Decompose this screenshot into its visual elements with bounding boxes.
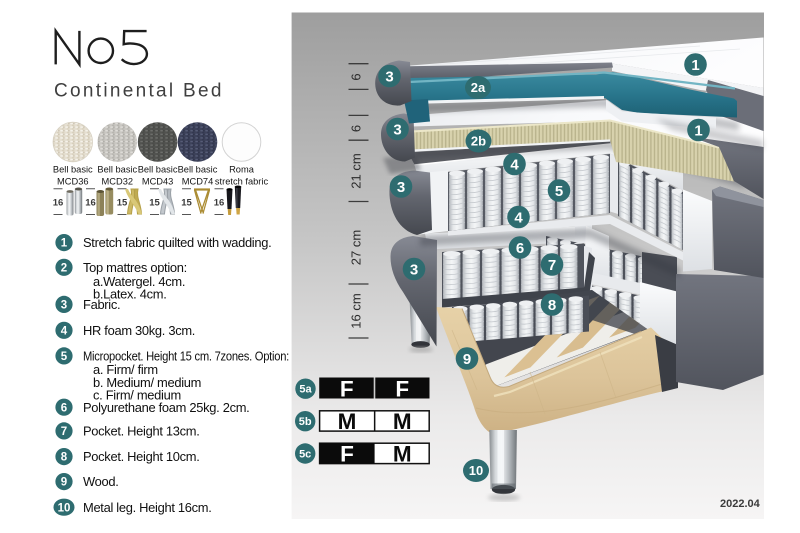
svg-text:MCD74: MCD74: [182, 177, 214, 187]
svg-text:3: 3: [393, 121, 401, 138]
svg-text:16: 16: [214, 198, 225, 209]
svg-text:16 cm: 16 cm: [349, 293, 364, 328]
svg-text:15: 15: [117, 198, 128, 209]
svg-text:16: 16: [53, 198, 64, 209]
svg-text:4: 4: [510, 156, 519, 173]
svg-text:6: 6: [61, 402, 67, 414]
svg-text:5a: 5a: [299, 384, 312, 396]
svg-text:5c: 5c: [299, 448, 311, 460]
svg-text:Top mattres option:: Top mattres option:: [83, 260, 187, 275]
svg-text:Fabric.: Fabric.: [83, 297, 120, 312]
svg-text:1: 1: [694, 122, 702, 139]
svg-text:2: 2: [61, 262, 67, 274]
svg-text:3: 3: [410, 261, 418, 278]
svg-text:21 cm: 21 cm: [349, 153, 364, 188]
svg-text:M: M: [393, 442, 412, 467]
svg-text:Pocket. Height 13cm.: Pocket. Height 13cm.: [83, 424, 200, 439]
svg-text:Bell basic: Bell basic: [53, 165, 93, 175]
svg-text:Bell basic: Bell basic: [97, 165, 137, 175]
svg-text:4: 4: [61, 325, 68, 337]
svg-text:Wood.: Wood.: [83, 474, 119, 489]
svg-text:7: 7: [61, 426, 67, 438]
svg-text:9: 9: [61, 477, 67, 489]
svg-text:6: 6: [349, 125, 364, 132]
svg-text:Bell basic: Bell basic: [138, 165, 178, 175]
svg-text:27 cm: 27 cm: [349, 230, 364, 265]
svg-text:Roma: Roma: [229, 165, 255, 175]
svg-text:8: 8: [548, 297, 556, 314]
svg-text:Polyurethane foam 25kg. 2cm.: Polyurethane foam 25kg. 2cm.: [83, 400, 249, 415]
svg-text:HR foam 30kg. 3cm.: HR foam 30kg. 3cm.: [83, 323, 195, 338]
svg-text:4: 4: [514, 209, 523, 226]
svg-text:2022.04: 2022.04: [720, 498, 761, 510]
svg-text:M: M: [338, 409, 357, 434]
svg-text:MCD36: MCD36: [57, 177, 89, 187]
svg-text:8: 8: [61, 452, 68, 464]
svg-text:MCD43: MCD43: [142, 177, 174, 187]
svg-text:16: 16: [85, 198, 96, 209]
svg-text:15: 15: [181, 198, 192, 209]
svg-text:Continental Bed: Continental Bed: [54, 81, 224, 102]
svg-text:10: 10: [469, 463, 483, 478]
svg-text:3: 3: [61, 300, 67, 312]
svg-text:F: F: [340, 376, 354, 401]
svg-text:5: 5: [555, 183, 563, 200]
svg-text:Bell basic: Bell basic: [178, 165, 218, 175]
svg-text:6: 6: [516, 240, 524, 257]
svg-text:1: 1: [691, 57, 699, 74]
svg-text:7: 7: [548, 257, 556, 274]
svg-text:F: F: [395, 376, 409, 401]
svg-text:F: F: [340, 442, 354, 467]
svg-text:Metal leg. Height 16cm.: Metal leg. Height 16cm.: [83, 500, 212, 515]
svg-text:5: 5: [61, 351, 68, 363]
svg-text:6: 6: [349, 73, 364, 80]
svg-text:M: M: [393, 409, 412, 434]
svg-text:3: 3: [397, 179, 405, 196]
svg-text:MCD32: MCD32: [102, 177, 134, 187]
svg-text:5b: 5b: [299, 416, 312, 428]
svg-text:2a: 2a: [471, 80, 486, 95]
svg-text:Pocket. Height 10cm.: Pocket. Height 10cm.: [83, 449, 200, 464]
svg-text:Stretch fabric quilted with wa: Stretch fabric quilted with wadding.: [83, 235, 271, 250]
svg-text:1: 1: [61, 238, 68, 250]
svg-text:stretch fabric: stretch fabric: [215, 177, 269, 187]
svg-text:15: 15: [149, 198, 160, 209]
svg-text:9: 9: [463, 351, 471, 368]
svg-text:3: 3: [385, 68, 393, 85]
svg-text:10: 10: [58, 502, 71, 514]
svg-text:2b: 2b: [471, 134, 486, 149]
